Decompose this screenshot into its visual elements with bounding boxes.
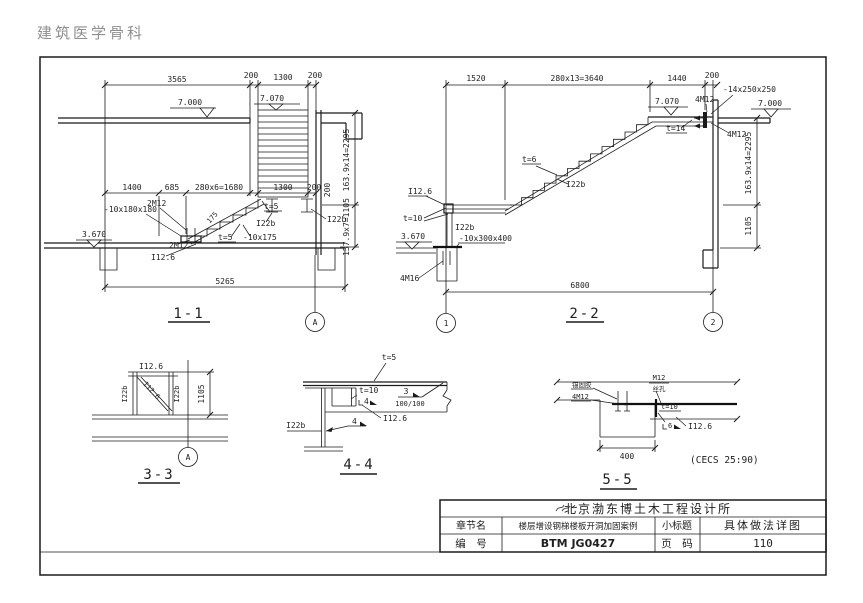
cell-page-value: 110 bbox=[753, 537, 773, 550]
note-cecs: (CECS 25:90) bbox=[690, 455, 759, 466]
section-4-4: t=5 t=10 4 3 100/100 I12.6 4 I22b 4-4 bbox=[286, 353, 451, 474]
cell-page-label: 页 码 bbox=[661, 538, 693, 550]
cell-chapter-label: 章节名 bbox=[456, 519, 486, 532]
cell-chapter-value: 楼层增设钢梯楼板开洞加固案例 bbox=[518, 521, 637, 532]
label-weld-100: 100/100 bbox=[395, 400, 425, 408]
level-3670: 3.670 bbox=[401, 232, 425, 241]
label-weld-6: 6 bbox=[668, 422, 672, 430]
dim-3565: 3565 bbox=[167, 75, 186, 84]
dim-v1105: 1105 bbox=[744, 216, 753, 235]
level-triangle-7070 bbox=[664, 107, 678, 115]
cell-subtitle-label: 小标题 bbox=[662, 520, 692, 532]
label-t10: t=10 bbox=[403, 214, 422, 223]
label-i126: I12.6 bbox=[383, 414, 407, 423]
vertical-dim bbox=[178, 372, 214, 415]
dim-5265: 5265 bbox=[215, 277, 234, 286]
weld-triangle-2 bbox=[413, 393, 420, 398]
section-5-5: 锚固胶 4M12 M12 丝孔 t=10 6 I12.6 400 (CECS 2… bbox=[554, 374, 759, 489]
cell-number-value: BTM JG0427 bbox=[541, 537, 615, 550]
dim-400-lines bbox=[600, 440, 655, 452]
dim-v200: 200 bbox=[323, 183, 332, 198]
label-2m12-b: 2M12 bbox=[169, 241, 188, 250]
label-t10: t=10 bbox=[661, 403, 678, 411]
dim-6800: 6800 bbox=[570, 281, 589, 290]
label-i22b: I22b bbox=[286, 421, 305, 430]
label-i126-top: I12.6 bbox=[139, 362, 163, 371]
section-title-5-5: 5-5 bbox=[602, 472, 633, 488]
section-title-2-2: 2-2 bbox=[569, 306, 600, 322]
section-title-1-1: 1-1 bbox=[173, 306, 204, 322]
label-i126: I12.6 bbox=[151, 253, 175, 262]
grid-label-a: A bbox=[186, 453, 191, 462]
dim-1440: 1440 bbox=[667, 74, 686, 83]
dim-685: 685 bbox=[165, 183, 180, 192]
grid-label-1: 1 bbox=[444, 319, 449, 328]
anchor-bolts bbox=[187, 228, 195, 242]
channel bbox=[325, 388, 447, 412]
label-i22b-slope: I22b bbox=[566, 180, 585, 189]
label-t5-a: t=5 bbox=[218, 233, 233, 242]
section-1-1: 3565 200 1300 200 1400 685 280x6=1680 13… bbox=[44, 71, 362, 332]
dim-1520: 1520 bbox=[466, 74, 485, 83]
section-title-4-4: 4-4 bbox=[343, 457, 374, 473]
label-4m12-a: 4M12 bbox=[695, 95, 714, 104]
label-underlines bbox=[408, 133, 687, 243]
grid-lines bbox=[446, 80, 713, 313]
label-4m16: 4M16 bbox=[400, 274, 419, 283]
level-underlines bbox=[396, 107, 791, 242]
label-threaded-hole: 丝孔 bbox=[653, 384, 667, 393]
label-i22b-left: I22b bbox=[121, 386, 129, 403]
i-beam bbox=[304, 388, 356, 451]
grid-label-2: 2 bbox=[711, 318, 716, 327]
level-7070: 7.070 bbox=[260, 94, 284, 103]
label-m12: M12 bbox=[653, 374, 666, 382]
label-t5: t=5 bbox=[382, 353, 397, 362]
page-frame bbox=[40, 57, 826, 575]
drawing-canvas: 3565 200 1300 200 1400 685 280x6=1680 13… bbox=[0, 0, 863, 603]
anchor-bolts bbox=[443, 251, 450, 265]
pier bbox=[437, 248, 457, 281]
piers bbox=[100, 248, 335, 270]
label-4m12: 4M12 bbox=[572, 393, 589, 401]
company-name: 北京渤东博土木工程设计所 bbox=[564, 501, 732, 516]
dim-1105: 1105 bbox=[197, 384, 206, 403]
vertical-dim bbox=[322, 113, 359, 247]
dim-1680: 280x6=1680 bbox=[195, 183, 243, 192]
dim-v1105: 157.9x7=1105 bbox=[342, 198, 351, 256]
cell-subtitle-value: 具体做法详图 bbox=[724, 518, 802, 532]
anchor-bolts bbox=[615, 391, 630, 411]
dim-200b: 200 bbox=[308, 71, 323, 80]
floor-slab-7000 bbox=[58, 118, 250, 123]
label-i22b-b: I22b bbox=[327, 215, 346, 224]
label-plate-300: -10x300x400 bbox=[459, 234, 512, 243]
level-triangle-7000 bbox=[764, 109, 778, 117]
section-3-3: I12.6 I12.6 I22b I22b 1105 A 3-3 bbox=[92, 360, 228, 483]
cell-number-label: 编 号 bbox=[455, 537, 487, 550]
label-i22b-a: I22b bbox=[256, 219, 275, 228]
level-7070: 7.070 bbox=[655, 97, 679, 106]
break-mark bbox=[443, 382, 451, 412]
level-triangle-7000 bbox=[200, 108, 214, 117]
floor-lines bbox=[92, 415, 228, 441]
dim-200c: 200 bbox=[307, 183, 322, 192]
label-i126: I12.6 bbox=[688, 422, 712, 431]
weld-symbol-6 bbox=[663, 424, 667, 429]
label-t5-b: t=5 bbox=[264, 202, 279, 211]
weld-triangle-1 bbox=[370, 401, 377, 406]
dim-v2295: 163.9x14=2295 bbox=[342, 129, 351, 192]
section-title-3-3: 3-3 bbox=[143, 467, 174, 483]
grid-label-a: A bbox=[313, 318, 318, 327]
level-7000: 7.000 bbox=[758, 99, 782, 108]
stair-treads bbox=[258, 116, 308, 188]
title-block: 北京渤东博土木工程设计所 章节名 楼层增设钢梯楼板开洞加固案例 小标题 具体做法… bbox=[440, 500, 826, 552]
stair-stringer bbox=[505, 122, 656, 215]
level-triangle-7070 bbox=[269, 104, 283, 110]
label-t6: t=6 bbox=[522, 155, 537, 164]
level-3670: 3.670 bbox=[82, 230, 106, 239]
dim-400: 400 bbox=[620, 452, 635, 461]
dim-200a: 200 bbox=[244, 71, 259, 80]
label-4m12-b: 4M12 bbox=[727, 130, 746, 139]
ground-slab bbox=[396, 248, 436, 253]
label-i126-diag: I12.6 bbox=[141, 380, 161, 401]
label-weld-4b: 4 bbox=[352, 417, 357, 426]
dim-1300a: 1300 bbox=[273, 73, 292, 82]
floor-slab-3670 bbox=[44, 243, 345, 248]
label-t10: t=10 bbox=[359, 386, 378, 395]
label-weld-3: 3 bbox=[404, 387, 409, 396]
weld-symbol-1 bbox=[359, 400, 363, 405]
dim-v2295: 163.9x14=2295 bbox=[744, 132, 753, 195]
section-2-2: 1520 280x13=3640 1440 200 6800 163.9x14=… bbox=[396, 71, 791, 333]
label-i126: I12.6 bbox=[408, 187, 432, 196]
dim-1300b: 1300 bbox=[273, 183, 292, 192]
label-weld-4a: 4 bbox=[364, 397, 369, 406]
dim-200: 200 bbox=[705, 71, 720, 80]
label-anchor-glue: 锚固胶 bbox=[572, 380, 592, 389]
label-t14: t=14 bbox=[666, 124, 685, 133]
floor-slab-7000 bbox=[718, 118, 770, 123]
label-plate-250: -14x250x250 bbox=[723, 85, 776, 94]
top-plate bbox=[303, 382, 447, 386]
dim-1400: 1400 bbox=[122, 183, 141, 192]
lower-landing bbox=[446, 205, 512, 213]
level-7000: 7.000 bbox=[178, 98, 202, 107]
label-i22b-post: I22b bbox=[455, 223, 474, 232]
label-plate-175: -10x175 bbox=[243, 233, 277, 242]
label-2m12-a: 2M12 bbox=[147, 199, 166, 208]
drawing-sheet: 建筑医学骨科 bbox=[0, 0, 863, 603]
dim-3640: 280x13=3640 bbox=[551, 74, 604, 83]
weld-triangle-6 bbox=[674, 425, 681, 430]
post-i22b bbox=[447, 213, 452, 248]
end-plate bbox=[703, 112, 707, 128]
label-i22b-right: I22b bbox=[173, 386, 181, 403]
